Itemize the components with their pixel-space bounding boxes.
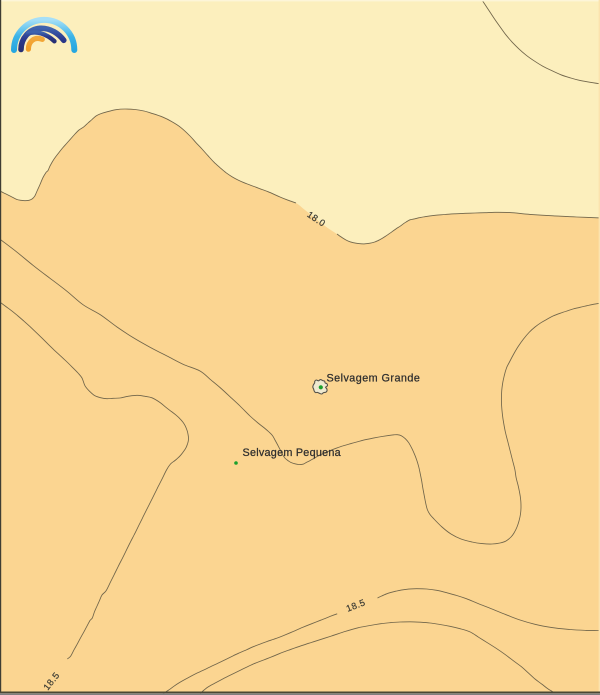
svg-text:Selvagem Pequena: Selvagem Pequena	[243, 447, 341, 459]
svg-text:Selvagem Grande: Selvagem Grande	[327, 373, 421, 385]
